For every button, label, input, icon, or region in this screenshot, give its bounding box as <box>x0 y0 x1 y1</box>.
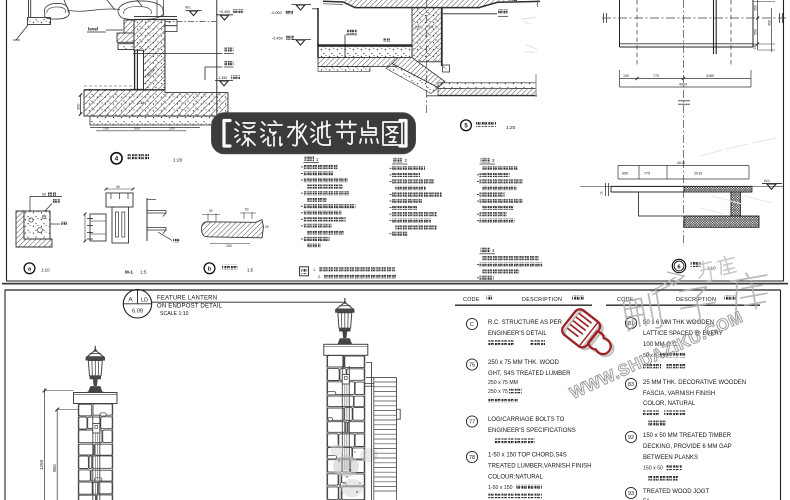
svg-text:A: A <box>128 296 133 303</box>
svg-text:LOG/CARRIAGE BOLTS TO: LOG/CARRIAGE BOLTS TO <box>488 417 565 423</box>
svg-text:92: 92 <box>628 435 634 441</box>
svg-text:FASCIA, VARNISH FINISH: FASCIA, VARNISH FINISH <box>643 391 715 397</box>
svg-text:DESCRIPTION: DESCRIPTION <box>522 297 562 303</box>
svg-text:-0.000: -0.000 <box>271 11 282 15</box>
svg-text:W.L: W.L <box>185 6 192 10</box>
svg-text:4010: 4010 <box>677 161 685 165</box>
svg-text:1-50 x 150 TOP CHORD,S4S: 1-50 x 150 TOP CHORD,S4S <box>488 453 567 459</box>
svg-text:ENGINEER'S SPECIFICATIONS: ENGINEER'S SPECIFICATIONS <box>488 428 576 434</box>
svg-text:1-50 x 150: 1-50 x 150 <box>488 485 513 491</box>
svg-text:650: 650 <box>622 172 628 176</box>
svg-text:TREATED WOOD JOGT: TREATED WOOD JOGT <box>643 489 710 495</box>
svg-text:W.L: W.L <box>764 179 771 183</box>
svg-text:83: 83 <box>628 382 634 388</box>
svg-text:b: b <box>208 267 212 273</box>
svg-text:2010: 2010 <box>694 172 702 176</box>
svg-text:150: 150 <box>226 244 232 248</box>
svg-text:CODE: CODE <box>463 297 480 303</box>
svg-text:150: 150 <box>753 44 757 50</box>
svg-text:M-1: M-1 <box>125 270 133 275</box>
svg-text:1:10: 1:10 <box>41 267 50 272</box>
svg-text:level: level <box>88 27 98 32</box>
svg-text:4: 4 <box>115 156 119 163</box>
svg-text:1.: 1. <box>313 268 316 272</box>
svg-text:78: 78 <box>469 455 475 461</box>
svg-text:150 x 50 MM TREATED TIMBER: 150 x 50 MM TREATED TIMBER <box>643 433 732 439</box>
svg-text:3185: 3185 <box>706 74 714 78</box>
svg-text:75: 75 <box>469 363 475 369</box>
svg-text:SCALE 1:10: SCALE 1:10 <box>160 311 189 317</box>
svg-text:40: 40 <box>116 185 120 189</box>
svg-text:ON ENDPOST DETAIL: ON ENDPOST DETAIL <box>157 303 223 309</box>
svg-text:1:20: 1:20 <box>506 125 516 131</box>
svg-text:6.09: 6.09 <box>132 309 143 315</box>
svg-text:4004: 4004 <box>679 82 687 86</box>
svg-text:775: 775 <box>653 74 659 78</box>
svg-text:+0.450: +0.450 <box>219 10 230 14</box>
svg-text:350: 350 <box>754 5 758 11</box>
svg-text:150: 150 <box>623 74 629 78</box>
svg-text:D4: D4 <box>415 25 419 29</box>
svg-text:250 x 75 MM THK. WOOD: 250 x 75 MM THK. WOOD <box>488 360 560 366</box>
svg-text:2.: 2. <box>318 275 321 279</box>
svg-text:77: 77 <box>469 420 475 426</box>
svg-text:250 x 75: 250 x 75 <box>488 389 508 395</box>
svg-text:1250: 1250 <box>39 459 44 470</box>
svg-text:25 MM THK. DECORATIVE WOODEN: 25 MM THK. DECORATIVE WOODEN <box>643 380 746 386</box>
svg-text:75: 75 <box>600 191 604 195</box>
svg-text:775: 775 <box>644 172 650 176</box>
svg-text:GHT, S4S TREATED LUMBER: GHT, S4S TREATED LUMBER <box>488 371 571 377</box>
svg-text:1:5: 1:5 <box>247 267 254 272</box>
svg-text:900: 900 <box>134 127 140 131</box>
svg-text:TREATED LUMBER,VARNISH FINISH: TREATED LUMBER,VARNISH FINISH <box>488 464 591 470</box>
svg-text:COLOUR:NATURAL: COLOUR:NATURAL <box>488 475 544 481</box>
svg-text:350: 350 <box>77 104 81 110</box>
svg-text:LD: LD <box>141 297 148 303</box>
svg-text:25: 25 <box>265 225 269 229</box>
svg-text:100: 100 <box>169 127 175 131</box>
svg-text:ENGINEER'S DETAIL: ENGINEER'S DETAIL <box>488 331 547 337</box>
svg-text:150 x 50: 150 x 50 <box>643 466 663 472</box>
svg-text:100: 100 <box>103 127 109 131</box>
svg-text:BETWEEN PLANKS: BETWEEN PLANKS <box>643 455 698 461</box>
svg-text:C15: C15 <box>138 101 144 105</box>
svg-text:250 x 75 MM: 250 x 75 MM <box>488 380 518 386</box>
svg-text:50: 50 <box>245 208 249 212</box>
svg-text:DECKING, PROVIDE 6 MM GAP: DECKING, PROVIDE 6 MM GAP <box>643 444 732 450</box>
svg-text:50: 50 <box>42 193 46 197</box>
svg-text:-0.450: -0.450 <box>272 36 283 40</box>
svg-text:950: 950 <box>52 464 57 472</box>
svg-text:COLOR, NATURAL: COLOR, NATURAL <box>643 401 696 407</box>
svg-text:R.C. STRUCTURE AS PER: R.C. STRUCTURE AS PER <box>488 320 563 326</box>
svg-text:1:5: 1:5 <box>140 270 147 275</box>
svg-text:400: 400 <box>768 20 772 26</box>
svg-text:-1.350: -1.350 <box>217 76 227 80</box>
svg-text:FEATURE LANTERN: FEATURE LANTERN <box>157 296 217 302</box>
svg-text:93: 93 <box>628 491 634 497</box>
svg-text:D5: D5 <box>429 25 433 29</box>
svg-text:550: 550 <box>754 29 758 35</box>
svg-text:1:20: 1:20 <box>173 158 183 164</box>
svg-text:50: 50 <box>209 209 213 213</box>
svg-text:C: C <box>470 322 474 328</box>
